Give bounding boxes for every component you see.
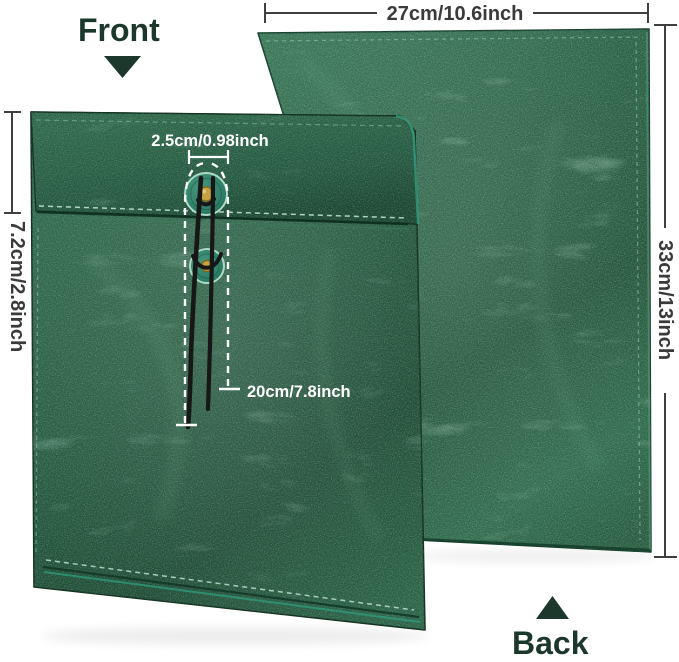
button-dimension-label: 2.5cm/0.98inch [151, 132, 268, 150]
product-dimension-image: 2.5cm/0.98inch 20cm/7.8inch 27cm/10.6inc… [0, 0, 679, 662]
back-label: Back [512, 625, 589, 661]
front-arrow-down-icon [104, 56, 141, 78]
back-arrow-up-icon [536, 596, 569, 619]
flap-dimension-label: 7.2cm/2.8inch [6, 221, 28, 352]
flap-texture [31, 112, 421, 228]
top-button [185, 173, 227, 215]
flap-dimension [4, 112, 21, 213]
width-dimension-label: 27cm/10.6inch [387, 3, 524, 25]
height-dimension-label: 33cm/13inch [654, 240, 676, 360]
front-envelope-shadow [40, 627, 430, 645]
front-envelope-flap [31, 112, 421, 229]
scene-svg: 2.5cm/0.98inch 20cm/7.8inch 27cm/10.6inc… [0, 0, 679, 662]
front-label: Front [78, 12, 160, 48]
string-dimension-label: 20cm/7.8inch [247, 383, 351, 401]
